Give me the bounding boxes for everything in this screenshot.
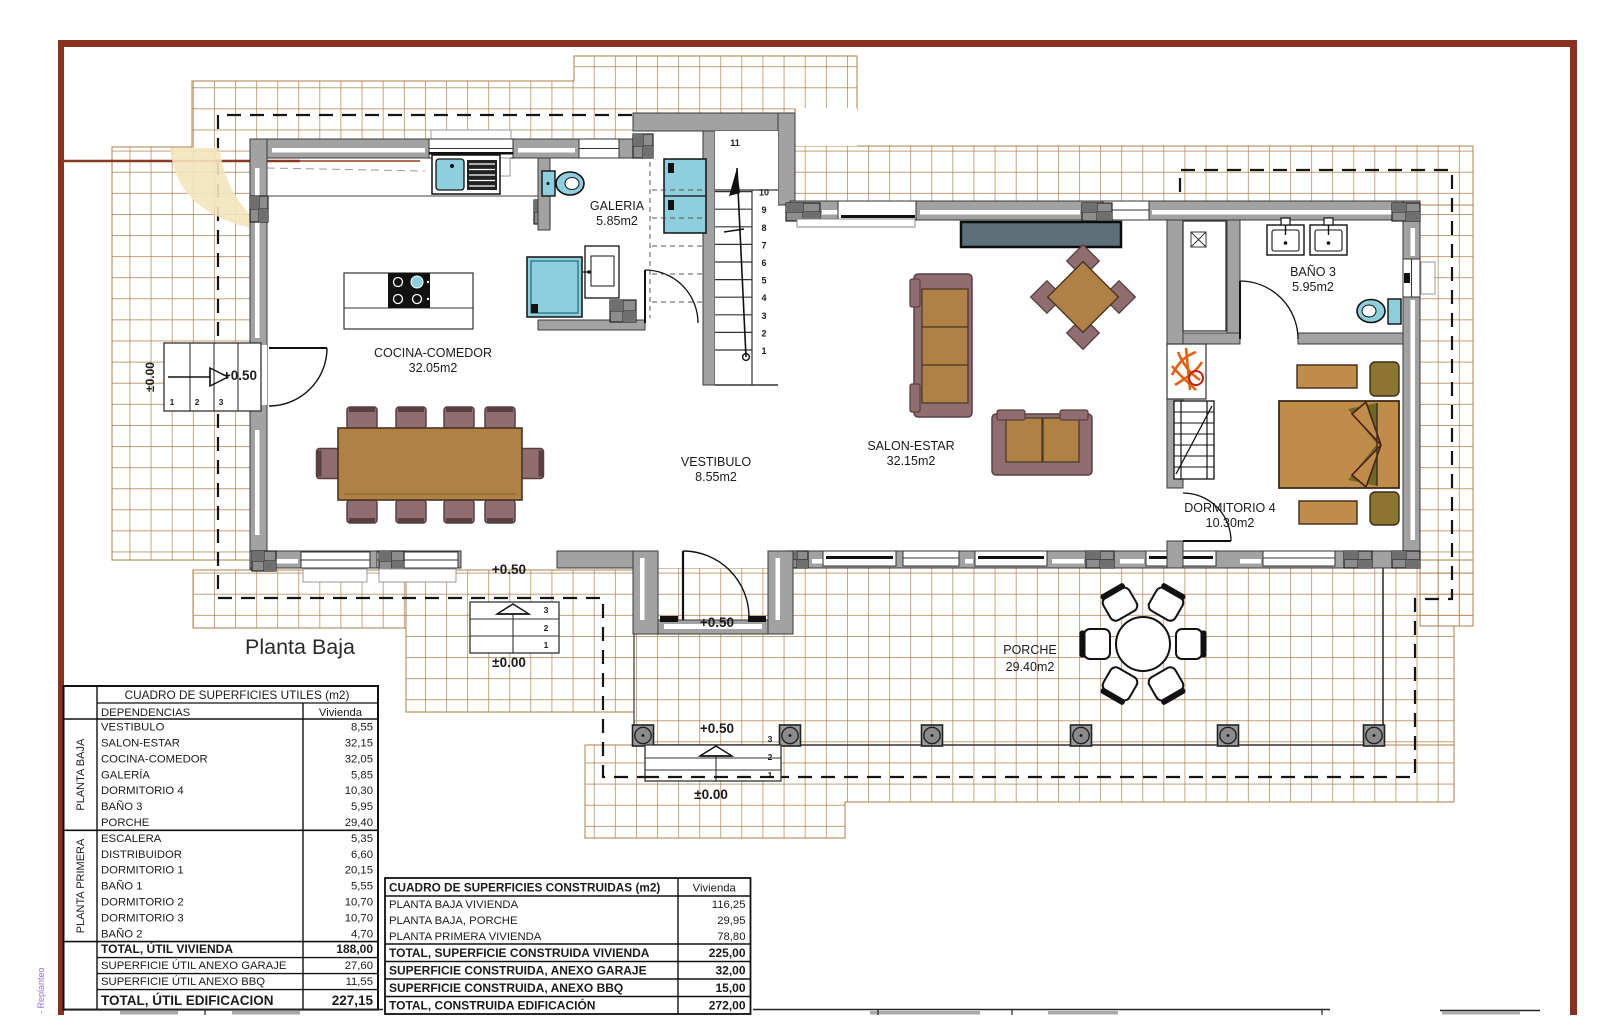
svg-text:SUPERFICIE ÚTIL ANEXO BBQ: SUPERFICIE ÚTIL ANEXO BBQ (101, 975, 265, 988)
svg-text:32,05: 32,05 (345, 753, 373, 765)
svg-text:4: 4 (761, 293, 766, 303)
svg-text:20,15: 20,15 (345, 865, 373, 877)
svg-text:±0.00: ±0.00 (492, 655, 526, 670)
svg-text:5: 5 (761, 276, 766, 286)
svg-text:1: 1 (768, 770, 773, 780)
svg-text:15,00: 15,00 (715, 981, 745, 995)
svg-text:29,95: 29,95 (717, 915, 745, 927)
svg-text:PORCHE: PORCHE (1003, 643, 1056, 657)
svg-text:188,00: 188,00 (336, 942, 373, 956)
svg-text:BAÑO 2: BAÑO 2 (101, 927, 142, 940)
svg-text:3: 3 (761, 311, 766, 321)
svg-text:BAÑO 3: BAÑO 3 (101, 800, 142, 813)
svg-text:DISTRIBUIDOR: DISTRIBUIDOR (101, 849, 182, 861)
svg-text:6,60: 6,60 (351, 849, 373, 861)
svg-text:BAÑO 3: BAÑO 3 (1290, 265, 1336, 279)
svg-text:PLANTA BAJA VIVIENDA: PLANTA BAJA VIVIENDA (389, 899, 519, 911)
svg-text:227,15: 227,15 (332, 993, 374, 1008)
svg-text:32,15: 32,15 (345, 738, 373, 750)
svg-text:SUPERFICIE ÚTIL ANEXO GARAJE: SUPERFICIE ÚTIL ANEXO GARAJE (101, 959, 287, 972)
svg-text:116,25: 116,25 (712, 899, 746, 911)
svg-text:1: 1 (170, 397, 175, 407)
svg-text:+0.50: +0.50 (492, 562, 526, 577)
svg-text:DORMITORIO 3: DORMITORIO 3 (101, 912, 184, 924)
svg-text:2: 2 (768, 752, 773, 762)
svg-text:8,55: 8,55 (351, 722, 373, 734)
svg-text:2: 2 (761, 328, 766, 338)
svg-text:225,00: 225,00 (709, 946, 746, 960)
svg-text:PLANTA PRIMERA VIVIENDA: PLANTA PRIMERA VIVIENDA (389, 931, 542, 943)
svg-text:ESCALERA: ESCALERA (101, 833, 162, 845)
svg-text:DORMITORIO 2: DORMITORIO 2 (101, 897, 184, 909)
svg-text:8.55m2: 8.55m2 (695, 470, 737, 484)
svg-text:PLANTA PRIMERA: PLANTA PRIMERA (75, 838, 87, 933)
svg-text:10,70: 10,70 (345, 897, 373, 909)
svg-text:2: 2 (195, 397, 200, 407)
svg-text:SALON-ESTAR: SALON-ESTAR (867, 439, 954, 453)
svg-text:DEPENDENCIAS: DEPENDENCIAS (101, 707, 191, 719)
svg-text:CUADRO DE SUPERFICIES CONSTRUI: CUADRO DE SUPERFICIES CONSTRUIDAS (m2) (389, 881, 660, 895)
svg-text:29.40m2: 29.40m2 (1006, 660, 1055, 674)
svg-text:10,30: 10,30 (345, 785, 373, 797)
svg-text:3: 3 (544, 605, 549, 615)
svg-text:5,85: 5,85 (351, 769, 373, 781)
svg-text:5,35: 5,35 (351, 833, 373, 845)
svg-text:PLANTA BAJA, PORCHE: PLANTA BAJA, PORCHE (389, 915, 518, 927)
svg-text:SUPERFICIE CONSTRUIDA, ANEXO B: SUPERFICIE CONSTRUIDA, ANEXO BBQ (389, 981, 623, 995)
svg-text:10: 10 (759, 188, 769, 198)
svg-text:5.95m2: 5.95m2 (1292, 280, 1334, 294)
svg-text:5,55: 5,55 (351, 881, 373, 893)
svg-text:11: 11 (730, 138, 740, 148)
svg-text:DORMITORIO 4: DORMITORIO 4 (101, 785, 184, 797)
svg-text:DORMITORIO 1: DORMITORIO 1 (101, 865, 184, 877)
svg-text:VESTIBULO: VESTIBULO (101, 722, 165, 734)
svg-text:COCINA-COMEDOR: COCINA-COMEDOR (374, 346, 492, 360)
svg-text:SALON-ESTAR: SALON-ESTAR (101, 738, 180, 750)
svg-text:+0.50: +0.50 (700, 721, 734, 736)
svg-text:±0.00: ±0.00 (694, 787, 728, 802)
svg-text:CUADRO DE SUPERFICIES UTILES (: CUADRO DE SUPERFICIES UTILES (m2) (125, 688, 350, 702)
svg-text:11,55: 11,55 (346, 976, 373, 988)
svg-text:10.30m2: 10.30m2 (1206, 516, 1255, 530)
svg-text:1: 1 (544, 640, 549, 650)
svg-text:Planta Baja: Planta Baja (245, 635, 355, 659)
svg-text:3: 3 (768, 734, 773, 744)
svg-text:32.15m2: 32.15m2 (887, 454, 936, 468)
svg-text:VESTIBULO: VESTIBULO (681, 455, 751, 469)
svg-text:+0.50: +0.50 (700, 615, 734, 630)
svg-text:6: 6 (761, 258, 766, 268)
svg-text:10,70: 10,70 (345, 912, 373, 924)
svg-text:2: 2 (544, 623, 549, 633)
svg-text:Vivienda: Vivienda (319, 707, 363, 719)
svg-text:4,70: 4,70 (351, 928, 373, 940)
svg-text:PORCHE: PORCHE (101, 817, 150, 829)
svg-text:32,00: 32,00 (715, 964, 745, 978)
svg-text:+0.50: +0.50 (223, 368, 257, 383)
svg-text:GALERIA: GALERIA (590, 199, 645, 213)
svg-text:3: 3 (219, 397, 224, 407)
svg-text:TOTAL, CONSTRUIDA EDIFICACIÓN: TOTAL, CONSTRUIDA EDIFICACIÓN (389, 998, 595, 1013)
svg-text:TOTAL, ÚTIL EDIFICACION: TOTAL, ÚTIL EDIFICACION (101, 993, 274, 1008)
svg-text:GALERÍA: GALERÍA (101, 768, 150, 781)
svg-text:PLANTA BAJA: PLANTA BAJA (75, 738, 87, 811)
svg-text:8: 8 (761, 223, 766, 233)
svg-text:29,40: 29,40 (345, 817, 373, 829)
svg-text:1: 1 (761, 346, 766, 356)
svg-text:32.05m2: 32.05m2 (409, 361, 458, 375)
svg-text:- Replanteo: - Replanteo (36, 967, 46, 1014)
svg-text:DORMITORIO 4: DORMITORIO 4 (1184, 501, 1275, 515)
svg-text:7: 7 (761, 240, 766, 250)
svg-text:TOTAL, ÚTIL VIVIENDA: TOTAL, ÚTIL VIVIENDA (101, 941, 233, 956)
svg-text:SUPERFICIE CONSTRUIDA, ANEXO G: SUPERFICIE CONSTRUIDA, ANEXO GARAJE (389, 964, 647, 978)
svg-text:272,00: 272,00 (709, 999, 746, 1013)
svg-text:9: 9 (761, 205, 766, 215)
svg-text:COCINA-COMEDOR: COCINA-COMEDOR (101, 753, 208, 765)
svg-text:±0.00: ±0.00 (143, 362, 157, 392)
svg-text:Vivienda: Vivienda (693, 883, 737, 895)
svg-text:78,80: 78,80 (717, 931, 745, 943)
svg-text:TOTAL, SUPERFICIE CONSTRUIDA V: TOTAL, SUPERFICIE CONSTRUIDA VIVIENDA (389, 946, 650, 960)
svg-text:27,60: 27,60 (345, 960, 373, 972)
svg-text:BAÑO 1: BAÑO 1 (101, 880, 142, 893)
svg-text:5,95: 5,95 (351, 801, 373, 813)
svg-text:5.85m2: 5.85m2 (596, 214, 638, 228)
